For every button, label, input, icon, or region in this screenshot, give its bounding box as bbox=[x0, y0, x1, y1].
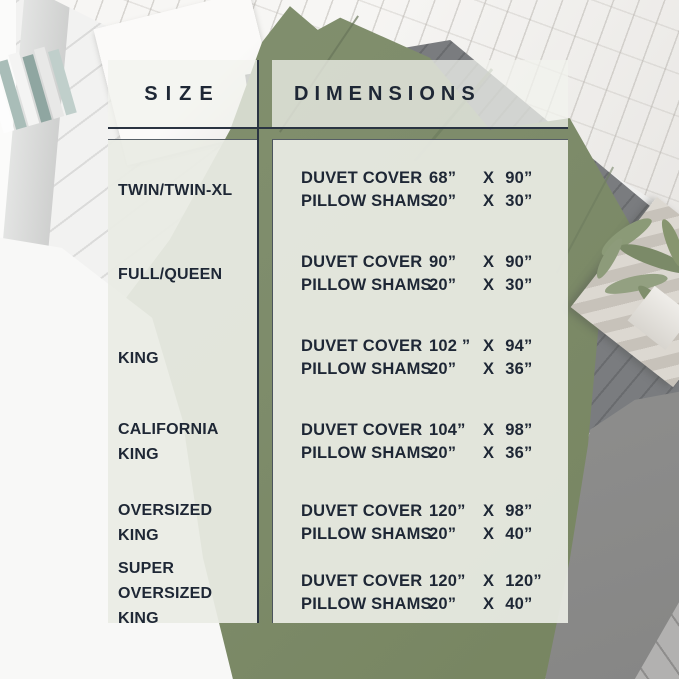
spec-item-name: PILLOW SHAMS bbox=[301, 358, 429, 381]
dimensions-column: DUVET COVER68”X90”PILLOW SHAMS20”X30” DU… bbox=[272, 139, 568, 623]
size-column: TWIN/TWIN-XL FULL/QUEEN KING CALIFORNIAK… bbox=[108, 139, 257, 623]
table-row-dimensions-cell: DUVET COVER120”X98”PILLOW SHAMS20”X40” bbox=[273, 484, 568, 562]
spec-line: PILLOW SHAMS20”X36” bbox=[301, 442, 568, 465]
dimension-width: 20” bbox=[429, 358, 483, 381]
spec-dimensions: 120”X120” bbox=[429, 570, 542, 593]
dimension-separator: X bbox=[483, 500, 494, 523]
spec-block: DUVET COVER120”X120”PILLOW SHAMS20”X40” bbox=[273, 570, 568, 616]
spec-dimensions: 104”X98” bbox=[429, 419, 532, 442]
dimension-width: 120” bbox=[429, 500, 483, 523]
dimension-separator: X bbox=[483, 167, 494, 190]
dimensions-header-label: DIMENSIONS bbox=[294, 83, 481, 106]
spec-dimensions: 20”X30” bbox=[429, 274, 532, 297]
dimension-height: 120” bbox=[505, 570, 542, 593]
table-row-dimensions-cell: DUVET COVER90”X90”PILLOW SHAMS20”X30” bbox=[273, 232, 568, 316]
dimensions-column-header: DIMENSIONS bbox=[272, 60, 568, 128]
dimension-separator: X bbox=[483, 251, 494, 274]
size-label-line: FULL/QUEEN bbox=[118, 262, 222, 287]
spec-line: DUVET COVER90”X90” bbox=[301, 251, 568, 274]
dimension-height: 90” bbox=[505, 251, 532, 274]
size-label-line: SUPER bbox=[118, 556, 257, 581]
table-row-dimensions-cell: DUVET COVER120”X120”PILLOW SHAMS20”X40” bbox=[273, 562, 568, 624]
table-row-size-cell: KING bbox=[108, 316, 257, 400]
dimension-width: 20” bbox=[429, 190, 483, 213]
spec-line: DUVET COVER104”X98” bbox=[301, 419, 568, 442]
size-label-line: KING bbox=[118, 442, 219, 467]
dimension-width: 104” bbox=[429, 419, 483, 442]
dimension-width: 102 ” bbox=[429, 335, 483, 358]
spec-line: DUVET COVER120”X120” bbox=[301, 570, 568, 593]
size-label-line: TWIN/TWIN-XL bbox=[118, 178, 232, 203]
spec-item-name: DUVET COVER bbox=[301, 500, 429, 523]
spec-item-name: PILLOW SHAMS bbox=[301, 274, 429, 297]
size-header-label: SIZE bbox=[144, 83, 220, 106]
size-label-line: CALIFORNIA bbox=[118, 417, 219, 442]
spec-block: DUVET COVER120”X98”PILLOW SHAMS20”X40” bbox=[273, 500, 568, 546]
dimension-width: 120” bbox=[429, 570, 483, 593]
spec-dimensions: 90”X90” bbox=[429, 251, 532, 274]
spec-item-name: PILLOW SHAMS bbox=[301, 593, 429, 616]
spec-dimensions: 20”X36” bbox=[429, 442, 532, 465]
spec-item-name: DUVET COVER bbox=[301, 167, 429, 190]
dimension-separator: X bbox=[483, 442, 494, 465]
dimension-height: 30” bbox=[505, 190, 532, 213]
header-underline bbox=[108, 127, 568, 129]
spec-dimensions: 20”X36” bbox=[429, 358, 532, 381]
size-label: SUPEROVERSIZED KING bbox=[108, 556, 257, 631]
spec-dimensions: 20”X30” bbox=[429, 190, 532, 213]
size-chart: SIZE DIMENSIONS TWIN/TWIN-XL FULL/QUEEN … bbox=[108, 60, 568, 623]
spec-line: DUVET COVER68”X90” bbox=[301, 167, 568, 190]
spec-item-name: PILLOW SHAMS bbox=[301, 442, 429, 465]
dimension-separator: X bbox=[483, 358, 494, 381]
dimension-width: 68” bbox=[429, 167, 483, 190]
spec-dimensions: 20”X40” bbox=[429, 523, 532, 546]
spec-dimensions: 68”X90” bbox=[429, 167, 532, 190]
size-label-line: OVERSIZED KING bbox=[118, 498, 257, 548]
table-row-size-cell: OVERSIZED KING bbox=[108, 484, 257, 562]
spec-block: DUVET COVER68”X90”PILLOW SHAMS20”X30” bbox=[273, 167, 568, 213]
dimension-separator: X bbox=[483, 593, 494, 616]
spec-line: DUVET COVER120”X98” bbox=[301, 500, 568, 523]
table-row-dimensions-cell: DUVET COVER104”X98”PILLOW SHAMS20”X36” bbox=[273, 400, 568, 484]
dimension-separator: X bbox=[483, 335, 494, 358]
dimension-height: 36” bbox=[505, 358, 532, 381]
spec-dimensions: 20”X40” bbox=[429, 593, 532, 616]
dimension-height: 94” bbox=[505, 335, 532, 358]
table-row-size-cell: CALIFORNIAKING bbox=[108, 400, 257, 484]
spec-block: DUVET COVER102 ”X94”PILLOW SHAMS20”X36” bbox=[273, 335, 568, 381]
dimension-height: 40” bbox=[505, 523, 532, 546]
table-row-size-cell: FULL/QUEEN bbox=[108, 232, 257, 316]
dimension-width: 20” bbox=[429, 593, 483, 616]
table-row-dimensions-cell: DUVET COVER68”X90”PILLOW SHAMS20”X30” bbox=[273, 148, 568, 232]
spec-item-name: DUVET COVER bbox=[301, 335, 429, 358]
dimension-separator: X bbox=[483, 570, 494, 593]
dimension-separator: X bbox=[483, 419, 494, 442]
spec-line: PILLOW SHAMS20”X36” bbox=[301, 358, 568, 381]
dimension-separator: X bbox=[483, 190, 494, 213]
spec-item-name: DUVET COVER bbox=[301, 570, 429, 593]
column-divider-line bbox=[257, 60, 259, 623]
dimension-separator: X bbox=[483, 274, 494, 297]
dimension-width: 20” bbox=[429, 523, 483, 546]
spec-line: PILLOW SHAMS20”X30” bbox=[301, 274, 568, 297]
dimension-width: 20” bbox=[429, 442, 483, 465]
spec-block: DUVET COVER90”X90”PILLOW SHAMS20”X30” bbox=[273, 251, 568, 297]
dimension-width: 90” bbox=[429, 251, 483, 274]
spec-line: DUVET COVER102 ”X94” bbox=[301, 335, 568, 358]
spec-line: PILLOW SHAMS20”X40” bbox=[301, 523, 568, 546]
size-label: CALIFORNIAKING bbox=[108, 417, 219, 467]
table-row-size-cell: TWIN/TWIN-XL bbox=[108, 148, 257, 232]
spec-item-name: PILLOW SHAMS bbox=[301, 523, 429, 546]
product-infographic: SIZE DIMENSIONS TWIN/TWIN-XL FULL/QUEEN … bbox=[0, 0, 679, 679]
dimension-height: 40” bbox=[505, 593, 532, 616]
dimension-height: 98” bbox=[505, 500, 532, 523]
size-label: OVERSIZED KING bbox=[108, 498, 257, 548]
size-label: TWIN/TWIN-XL bbox=[108, 178, 232, 203]
dimension-height: 30” bbox=[505, 274, 532, 297]
size-column-header: SIZE bbox=[108, 60, 257, 128]
spec-line: PILLOW SHAMS20”X40” bbox=[301, 593, 568, 616]
spec-block: DUVET COVER104”X98”PILLOW SHAMS20”X36” bbox=[273, 419, 568, 465]
spec-item-name: DUVET COVER bbox=[301, 251, 429, 274]
dimension-height: 98” bbox=[505, 419, 532, 442]
spec-line: PILLOW SHAMS20”X30” bbox=[301, 190, 568, 213]
spec-item-name: DUVET COVER bbox=[301, 419, 429, 442]
table-row-size-cell: SUPEROVERSIZED KING bbox=[108, 562, 257, 624]
dimension-width: 20” bbox=[429, 274, 483, 297]
dimension-separator: X bbox=[483, 523, 494, 546]
size-label: KING bbox=[108, 346, 159, 371]
size-label-line: OVERSIZED KING bbox=[118, 581, 257, 631]
size-label: FULL/QUEEN bbox=[108, 262, 222, 287]
spec-dimensions: 120”X98” bbox=[429, 500, 532, 523]
spec-item-name: PILLOW SHAMS bbox=[301, 190, 429, 213]
spec-dimensions: 102 ”X94” bbox=[429, 335, 532, 358]
dimension-height: 90” bbox=[505, 167, 532, 190]
size-label-line: KING bbox=[118, 346, 159, 371]
dimension-height: 36” bbox=[505, 442, 532, 465]
table-row-dimensions-cell: DUVET COVER102 ”X94”PILLOW SHAMS20”X36” bbox=[273, 316, 568, 400]
